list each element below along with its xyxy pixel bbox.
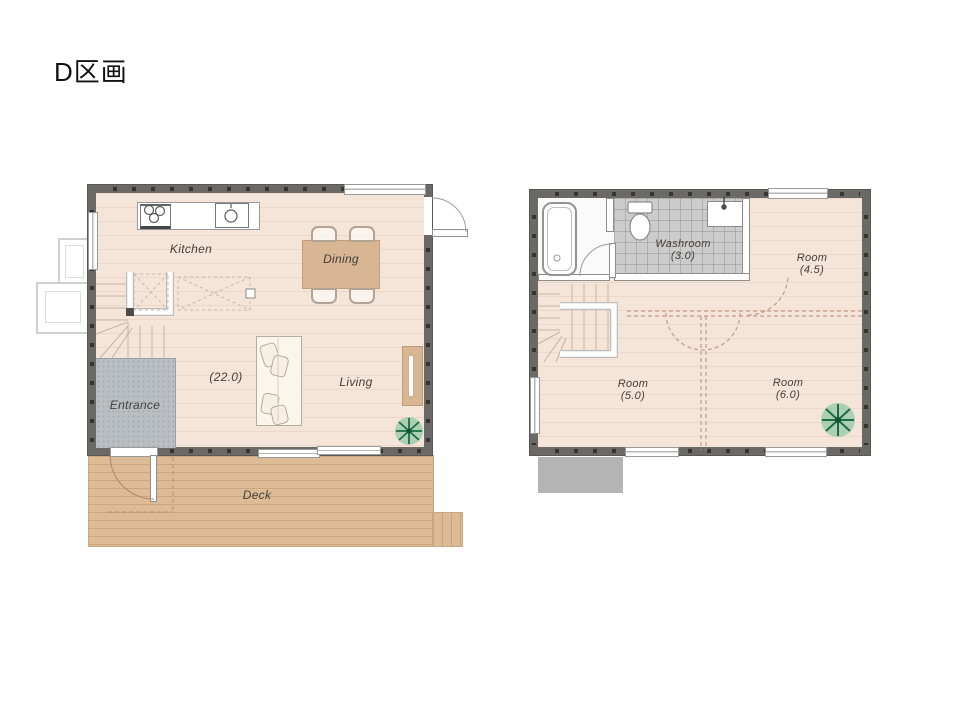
chair xyxy=(349,288,375,304)
room-label-living: Living xyxy=(339,375,372,389)
floor-plan-page: D区画 xyxy=(0,0,960,720)
tv-icon xyxy=(408,355,414,397)
wall-bathroom-divider xyxy=(606,198,614,232)
washroom-name: Washroom xyxy=(655,238,710,250)
room-60-name: Room xyxy=(773,377,804,389)
door-opening-1f-right xyxy=(424,197,432,235)
room-label-dining: Dining xyxy=(323,252,359,266)
exterior-bay-lower xyxy=(36,282,92,334)
door-leaf-entrance xyxy=(150,455,157,502)
porch-roof xyxy=(538,457,623,493)
window-2f-left xyxy=(530,377,540,434)
room-label-deck: Deck xyxy=(243,488,272,502)
room-50-name: Room xyxy=(618,378,649,390)
stove-icon xyxy=(140,204,171,229)
washroom-area: (3.0) xyxy=(655,250,710,262)
door-leaf-bathroom xyxy=(609,243,616,278)
window-1f-left xyxy=(88,212,98,270)
room-45-name: Room xyxy=(797,252,828,264)
chair xyxy=(349,226,375,242)
kitchen-sink-icon xyxy=(215,203,249,228)
bathtub-inner xyxy=(547,207,572,271)
area-label-1f: (22.0) xyxy=(209,370,242,384)
sliding-window-1f-bottom-left xyxy=(258,449,320,458)
bathtub-icon xyxy=(542,202,577,276)
room-label-washroom: Washroom (3.0) xyxy=(655,238,710,262)
chair xyxy=(311,288,337,304)
room-label-room-50: Room (5.0) xyxy=(618,378,649,402)
exterior-bay-upper-inner xyxy=(65,245,84,278)
exterior-bay-lower-inner xyxy=(45,291,81,323)
washbasin-icon xyxy=(707,201,743,227)
wall-studs-right-2f xyxy=(864,200,868,445)
room-label-kitchen: Kitchen xyxy=(170,242,212,256)
exterior-bay-upper xyxy=(58,238,92,286)
room-45-area: (4.5) xyxy=(797,264,828,276)
wall-washroom-right xyxy=(742,198,750,280)
window-2f-bottom-right xyxy=(765,447,827,457)
sliding-window-1f-bottom-right xyxy=(317,446,381,455)
room-label-room-60: Room (6.0) xyxy=(773,377,804,401)
room-label-room-45: Room (4.5) xyxy=(797,252,828,276)
room-label-entrance: Entrance xyxy=(110,398,160,412)
sofa xyxy=(256,336,302,426)
door-leaf-1f-right xyxy=(432,229,468,237)
page-title: D区画 xyxy=(54,52,128,89)
window-1f-top xyxy=(344,184,426,195)
room-60-area: (6.0) xyxy=(773,389,804,401)
deck-step xyxy=(432,512,463,547)
chair xyxy=(311,226,337,242)
wall-washroom-bottom xyxy=(614,273,750,281)
door-swing-1f-right xyxy=(432,198,466,232)
window-2f-top xyxy=(768,188,828,199)
room-50-area: (5.0) xyxy=(618,390,649,402)
tv-board xyxy=(402,346,423,406)
window-2f-bottom-left xyxy=(625,447,679,457)
